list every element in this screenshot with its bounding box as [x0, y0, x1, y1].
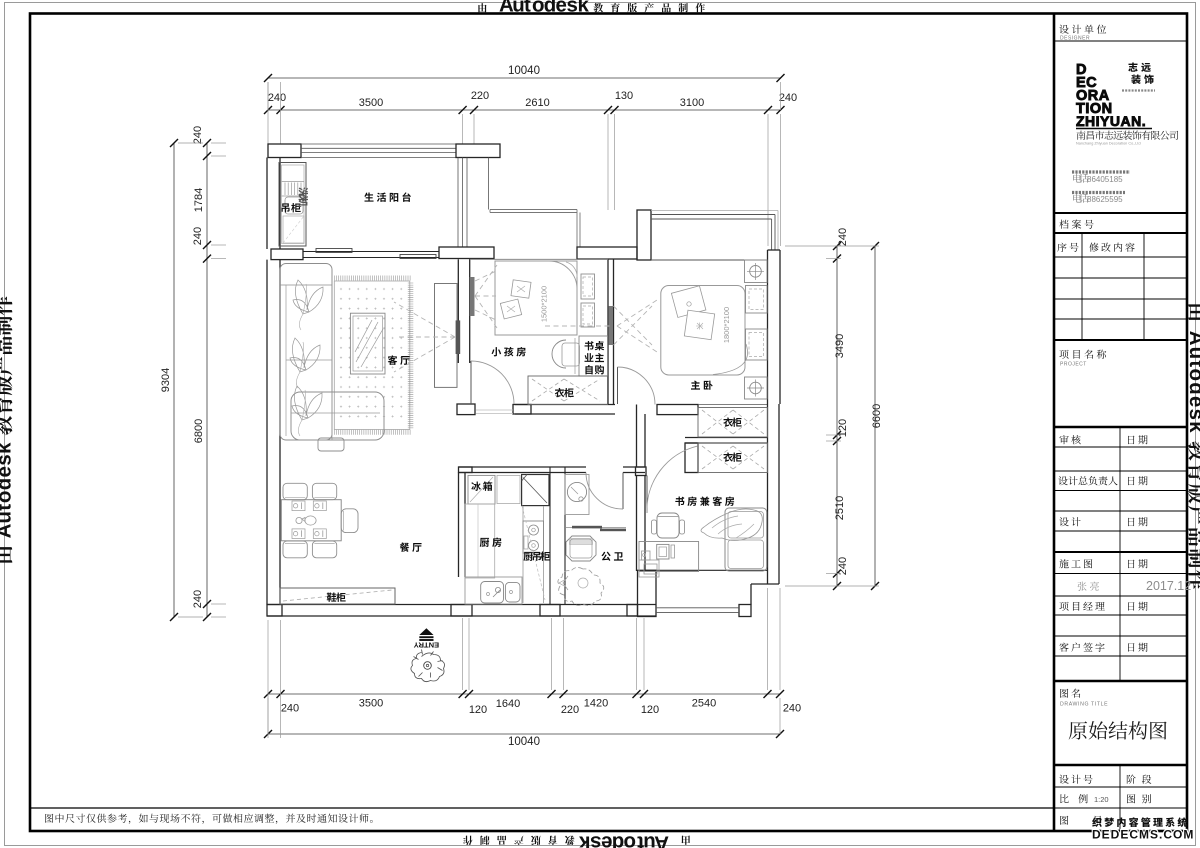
svg-text:DRAWING TITLE: DRAWING TITLE	[1060, 702, 1108, 708]
svg-text:ENTRY: ENTRY	[414, 640, 439, 649]
svg-text:220: 220	[471, 90, 489, 102]
svg-text:1800*2100: 1800*2100	[722, 307, 731, 343]
svg-text:1420: 1420	[584, 698, 608, 710]
svg-text:6800: 6800	[193, 419, 205, 443]
svg-text:120: 120	[469, 704, 487, 716]
svg-text:88625595: 88625595	[1087, 195, 1123, 204]
svg-text:1:20: 1:20	[1094, 795, 1109, 804]
svg-text:240: 240	[192, 126, 204, 144]
svg-text:130: 130	[615, 90, 633, 102]
svg-text:PROJECT: PROJECT	[1060, 362, 1087, 368]
svg-text:ZHIYUAN.: ZHIYUAN.	[1076, 113, 1146, 129]
svg-text:Nanchang Zhiyuan Decoration Co: Nanchang Zhiyuan Decoration Co.,Ltd	[1076, 142, 1141, 146]
svg-text:240: 240	[192, 590, 204, 608]
svg-text:DEDECMS.COM: DEDECMS.COM	[1092, 828, 1194, 842]
svg-text:DESIGNER: DESIGNER	[1060, 36, 1090, 42]
svg-text:120: 120	[837, 419, 849, 437]
svg-text:3100: 3100	[680, 97, 704, 109]
svg-text:240: 240	[779, 92, 797, 104]
svg-text:120: 120	[641, 704, 659, 716]
svg-text:1640: 1640	[496, 698, 520, 710]
svg-text:1500*2100: 1500*2100	[540, 286, 549, 322]
svg-text:3500: 3500	[359, 97, 383, 109]
svg-text:10040: 10040	[508, 736, 540, 748]
svg-text:3490: 3490	[834, 334, 846, 358]
svg-text:6600: 6600	[871, 404, 883, 428]
svg-text:240: 240	[837, 557, 849, 575]
svg-text:2540: 2540	[692, 698, 716, 710]
svg-text:86405185: 86405185	[1087, 175, 1123, 184]
svg-text:240: 240	[837, 228, 849, 246]
svg-text:240: 240	[783, 703, 801, 715]
svg-text:2510: 2510	[834, 496, 846, 520]
svg-text:220: 220	[561, 704, 579, 716]
svg-text:9304: 9304	[160, 368, 172, 392]
svg-text:10040: 10040	[508, 65, 540, 77]
svg-text:3500: 3500	[359, 698, 383, 710]
svg-text:2017.12: 2017.12	[1146, 579, 1191, 593]
svg-text:2610: 2610	[525, 97, 549, 109]
svg-text:240: 240	[192, 227, 204, 245]
svg-text:1784: 1784	[193, 188, 205, 212]
svg-text:240: 240	[268, 92, 286, 104]
svg-text:240: 240	[281, 703, 299, 715]
